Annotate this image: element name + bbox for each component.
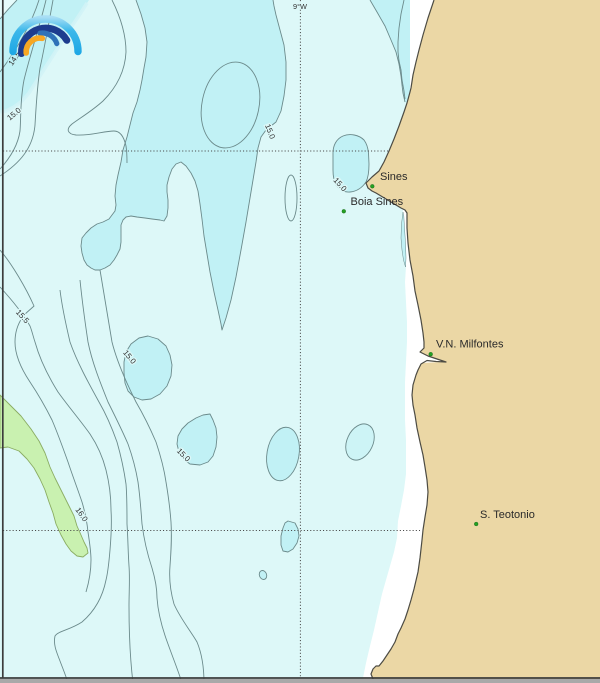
svg-text:9°W: 9°W [293,2,307,11]
svg-text:Sines: Sines [380,171,408,183]
svg-text:V.N. Milfontes: V.N. Milfontes [436,339,504,351]
svg-text:S. Teotonio: S. Teotonio [480,509,535,521]
svg-text:Boia Sines: Boia Sines [351,196,404,208]
